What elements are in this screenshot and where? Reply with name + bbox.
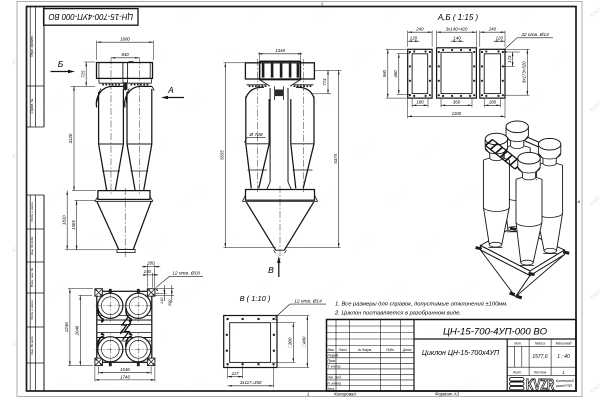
svg-text:240: 240 (488, 27, 497, 32)
svg-text:Взам. инв. №: Взам. инв. № (30, 267, 34, 287)
svg-text:2046: 2046 (75, 325, 80, 336)
svg-text:Справ. №: Справ. № (30, 98, 34, 113)
svg-text:3х173=520: 3х173=520 (522, 61, 527, 83)
svg-text:3120: 3120 (68, 133, 73, 143)
svg-text:1. Все размеры для справок, до: 1. Все размеры для справок, допустимые о… (335, 301, 508, 307)
svg-text:1 : 40: 1 : 40 (557, 354, 570, 360)
svg-text:Перв. примен.: Перв. примен. (30, 35, 34, 57)
svg-text:120: 120 (496, 36, 504, 41)
svg-text:В: В (268, 265, 274, 275)
svg-text:32 отв. Ø14: 32 отв. Ø14 (521, 32, 549, 38)
svg-text:Н. контр.: Н. контр. (328, 381, 342, 385)
svg-text:А,Б ( 1:15 ): А,Б ( 1:15 ) (437, 13, 479, 22)
svg-text:725: 725 (80, 70, 85, 78)
svg-text:1: 1 (321, 1, 323, 6)
svg-text:завод РЗП: завод РЗП (555, 384, 573, 388)
svg-text:Изм.: Изм. (328, 348, 335, 352)
svg-text:460: 460 (393, 70, 398, 78)
svg-text:Утв.: Утв. (328, 387, 335, 391)
svg-text:Инв. № дубл.: Инв. № дубл. (30, 236, 34, 255)
svg-text:ЦН-15-700-4УП-000 ВО: ЦН-15-700-4УП-000 ВО (48, 12, 133, 21)
svg-text:1546: 1546 (120, 367, 130, 372)
svg-text:Б: Б (58, 59, 64, 69)
svg-text:□400: □400 (302, 336, 307, 347)
svg-text:173: 173 (507, 55, 512, 63)
svg-text:140: 140 (144, 269, 152, 274)
svg-text:□300: □300 (288, 337, 293, 348)
svg-text:774: 774 (322, 78, 327, 86)
svg-text:Подп.: Подп. (386, 348, 395, 352)
svg-text:5655: 5655 (220, 150, 225, 160)
svg-text:Котельный: Котельный (556, 379, 574, 383)
svg-text:840: 840 (122, 52, 130, 57)
svg-text:Нач. отд.: Нач. отд. (328, 376, 342, 380)
svg-text:3х140=420: 3х140=420 (446, 27, 468, 32)
svg-text:3х117=350: 3х117=350 (240, 380, 262, 385)
svg-text:180: 180 (489, 100, 497, 105)
svg-text:Масса: Масса (535, 342, 545, 346)
svg-text:Пров.: Пров. (328, 359, 337, 363)
svg-text:Масштаб: Масштаб (556, 342, 572, 346)
svg-text:140: 140 (159, 297, 164, 304)
svg-text:560: 560 (382, 69, 387, 77)
svg-text:KVZR: KVZR (526, 377, 555, 394)
svg-text:360: 360 (453, 100, 461, 105)
svg-text:2246: 2246 (64, 322, 69, 333)
svg-text:1746: 1746 (120, 374, 130, 379)
svg-text:А: А (576, 199, 580, 204)
svg-text:1340: 1340 (275, 48, 285, 53)
svg-text:1577,6: 1577,6 (532, 354, 548, 360)
svg-text:12 отв. Ø18: 12 отв. Ø18 (172, 270, 200, 276)
svg-text:1810: 1810 (61, 215, 66, 225)
svg-text:Формат А3: Формат А3 (435, 392, 460, 397)
svg-text:180: 180 (416, 100, 424, 105)
svg-text:200: 200 (167, 299, 172, 307)
svg-text:Лист: Лист (338, 348, 348, 352)
svg-text:2. Циклон поставляется в разоб: 2. Циклон поставляется в разобранном вид… (334, 310, 461, 316)
svg-text:1: 1 (307, 392, 309, 397)
svg-text:1680: 1680 (120, 37, 130, 42)
svg-text:140: 140 (453, 36, 461, 41)
svg-text:Т. контр.: Т. контр. (328, 365, 342, 369)
svg-text:Разраб.: Разраб. (328, 354, 340, 358)
svg-text:240: 240 (415, 27, 424, 32)
svg-text:5375: 5375 (333, 153, 338, 163)
svg-text:В ( 1:10 ): В ( 1:10 ) (240, 294, 271, 303)
svg-text:Подп. и дата: Подп. и дата (30, 202, 34, 222)
svg-text:№ докум.: № докум. (358, 348, 372, 352)
svg-text:А: А (167, 85, 174, 95)
svg-text:Дата: Дата (402, 348, 412, 352)
svg-text:1100: 1100 (452, 111, 462, 116)
svg-text:Подп. и дата: Подп. и дата (30, 300, 34, 320)
svg-text:Копировал: Копировал (334, 392, 356, 397)
svg-text:12 отв. Ø14: 12 отв. Ø14 (294, 298, 322, 304)
svg-text:Листов: Листов (533, 371, 547, 375)
svg-text:ЦН-15-700-4УП-000 ВО: ЦН-15-700-4УП-000 ВО (443, 327, 548, 338)
svg-text:1: 1 (562, 370, 564, 375)
svg-text:Инв. № подл.: Инв. № подл. (30, 335, 34, 354)
svg-text:200: 200 (146, 260, 155, 265)
svg-text:117: 117 (232, 371, 240, 376)
svg-text:Циклон ЦН-15-700х4УП: Циклон ЦН-15-700х4УП (422, 350, 500, 357)
svg-text:120: 120 (410, 36, 418, 41)
svg-text:1505: 1505 (71, 220, 76, 230)
svg-text:Лист: Лист (512, 371, 522, 375)
svg-text:Лит.: Лит. (513, 342, 522, 346)
